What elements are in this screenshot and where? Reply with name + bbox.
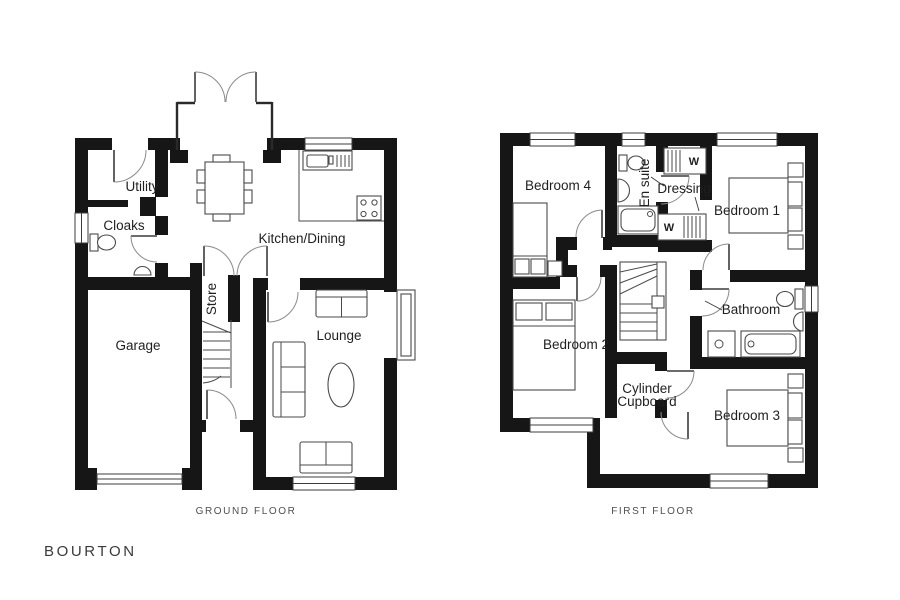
bed-icon-bedroom4 xyxy=(513,203,562,277)
room-label-garage: Garage xyxy=(115,338,160,353)
room-label-bedroom3: Bedroom 3 xyxy=(714,408,780,423)
bathroom-window xyxy=(805,286,818,312)
ensuite-window xyxy=(622,133,645,146)
room-label-en-suite: En suite xyxy=(637,159,652,208)
room-label-bedroom4: Bedroom 4 xyxy=(525,178,592,193)
room-label-store: Store xyxy=(204,283,219,315)
coffee-table-icon xyxy=(328,363,354,407)
room-label-bathroom: Bathroom xyxy=(722,302,781,317)
dressing-leader-line xyxy=(695,197,699,211)
first-floor-caption: FIRST FLOOR xyxy=(611,506,695,517)
floorplan-page: Utility Cloaks Garage Store Kitchen/Dini… xyxy=(0,0,900,600)
wardrobe-bottom-icon: W xyxy=(658,214,706,240)
staircase-icon xyxy=(202,320,231,388)
sofa-left-icon xyxy=(273,342,305,417)
room-label-kitchen-dining: Kitchen/Dining xyxy=(258,231,345,246)
bedroom2-door-icon xyxy=(577,277,601,301)
room-label-cloaks: Cloaks xyxy=(103,218,145,233)
bedroom4-window xyxy=(530,133,575,146)
kitchen-door-icon xyxy=(237,246,267,276)
room-label-utility: Utility xyxy=(126,179,159,194)
bedroom2-window xyxy=(530,418,593,432)
porch xyxy=(177,72,272,150)
basin-icon xyxy=(618,179,630,202)
bath-icon xyxy=(618,206,658,234)
dining-table-icon xyxy=(197,155,252,221)
front-door-icon xyxy=(207,390,236,419)
bedroom4-door-icon xyxy=(576,210,602,238)
room-label-cylinder-cupboard-line2: Cupboard xyxy=(617,394,676,409)
room-label-dressing: Dressing xyxy=(657,181,710,196)
kitchen-counter xyxy=(299,150,384,221)
wc-icon xyxy=(777,289,804,309)
bathroom-leader-line xyxy=(705,301,722,310)
wardrobe-marker: W xyxy=(689,156,700,168)
double-door-icon xyxy=(195,72,256,102)
utility-door-icon xyxy=(114,150,146,182)
shower-icon xyxy=(708,331,735,357)
sofa-top-icon xyxy=(316,290,367,317)
kitchen-window xyxy=(305,138,352,150)
cloaks-door-icon xyxy=(131,236,157,262)
lounge-door-icon xyxy=(268,292,298,322)
ground-floor-plan: Utility Cloaks Garage Store Kitchen/Dini… xyxy=(75,72,415,517)
basin-icon xyxy=(794,312,804,331)
room-label-bedroom1: Bedroom 1 xyxy=(714,203,780,218)
bath-icon xyxy=(741,331,800,357)
wardrobe-top-icon: W xyxy=(664,148,706,174)
basin-icon xyxy=(134,267,151,276)
first-floor-plan: W W xyxy=(500,133,818,517)
bedroom1-window xyxy=(717,133,777,146)
garage-door xyxy=(97,474,182,484)
room-label-bedroom2: Bedroom 2 xyxy=(543,337,609,352)
sink-icon xyxy=(303,151,352,170)
lounge-window xyxy=(293,477,355,490)
page-title: BOURTON xyxy=(44,543,137,560)
bedroom3-window xyxy=(710,474,768,488)
wc-icon xyxy=(90,234,116,251)
sofa-bottom-icon xyxy=(300,442,352,473)
floorplan-drawing: Utility Cloaks Garage Store Kitchen/Dini… xyxy=(0,0,900,600)
store-door-icon xyxy=(204,246,234,276)
wardrobe-marker: W xyxy=(664,222,675,234)
hob-icon xyxy=(357,196,381,220)
staircase-icon xyxy=(620,262,666,340)
bay-window xyxy=(397,290,415,360)
cloaks-window xyxy=(75,213,88,243)
room-label-lounge: Lounge xyxy=(316,328,361,343)
ground-floor-caption: GROUND FLOOR xyxy=(196,506,297,517)
